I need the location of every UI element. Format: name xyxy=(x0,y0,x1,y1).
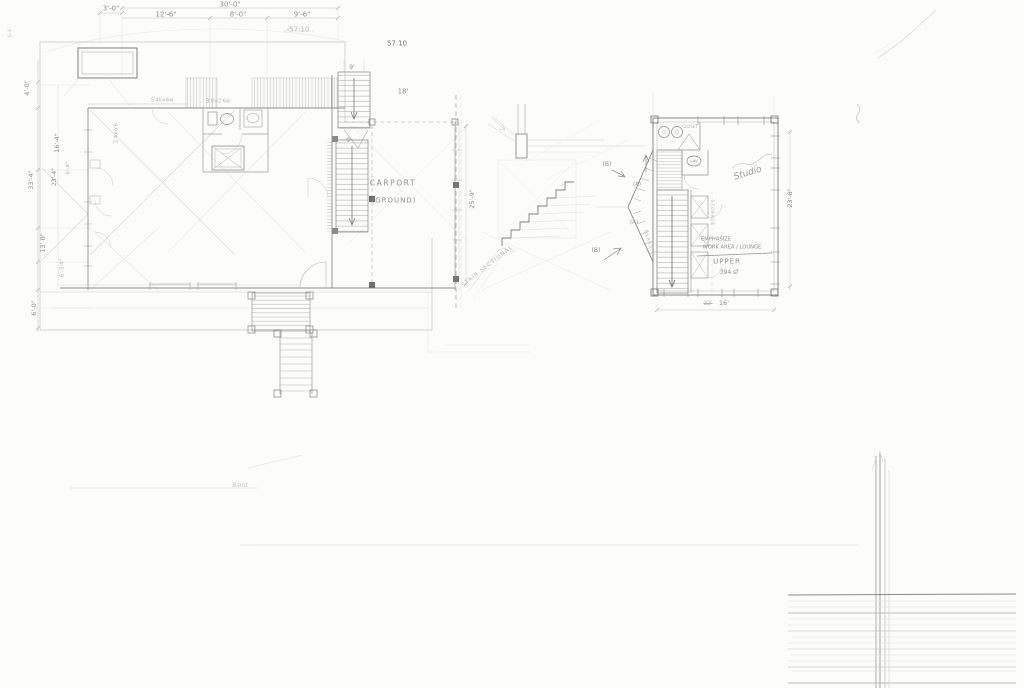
ground-plan-deck-strips xyxy=(186,78,337,108)
floor-plan-drawing xyxy=(0,0,1024,688)
sink-symbol xyxy=(244,110,262,127)
scan-artifact-lines xyxy=(788,450,1016,688)
stair-section-sketch xyxy=(453,95,645,310)
upper-stair xyxy=(657,190,688,293)
stray-pencil-marks xyxy=(856,10,936,123)
faint-sheet-lines xyxy=(70,455,858,545)
ground-plan-clerestory xyxy=(64,48,137,106)
scanned-floor-plan-sheet: 3'-0" 12'-6" 30'-0" 8'-0" 9'-6" -57:10 5… xyxy=(0,0,1024,688)
dryer-symbol xyxy=(672,127,683,138)
toilet-symbol xyxy=(208,112,217,125)
deck-stairs xyxy=(248,292,530,397)
bathroom-fixtures xyxy=(203,108,268,172)
washer-symbol xyxy=(659,127,670,138)
carport-stairs xyxy=(332,60,462,290)
interior-doors xyxy=(90,108,328,288)
lavatory-symbol xyxy=(687,156,701,166)
